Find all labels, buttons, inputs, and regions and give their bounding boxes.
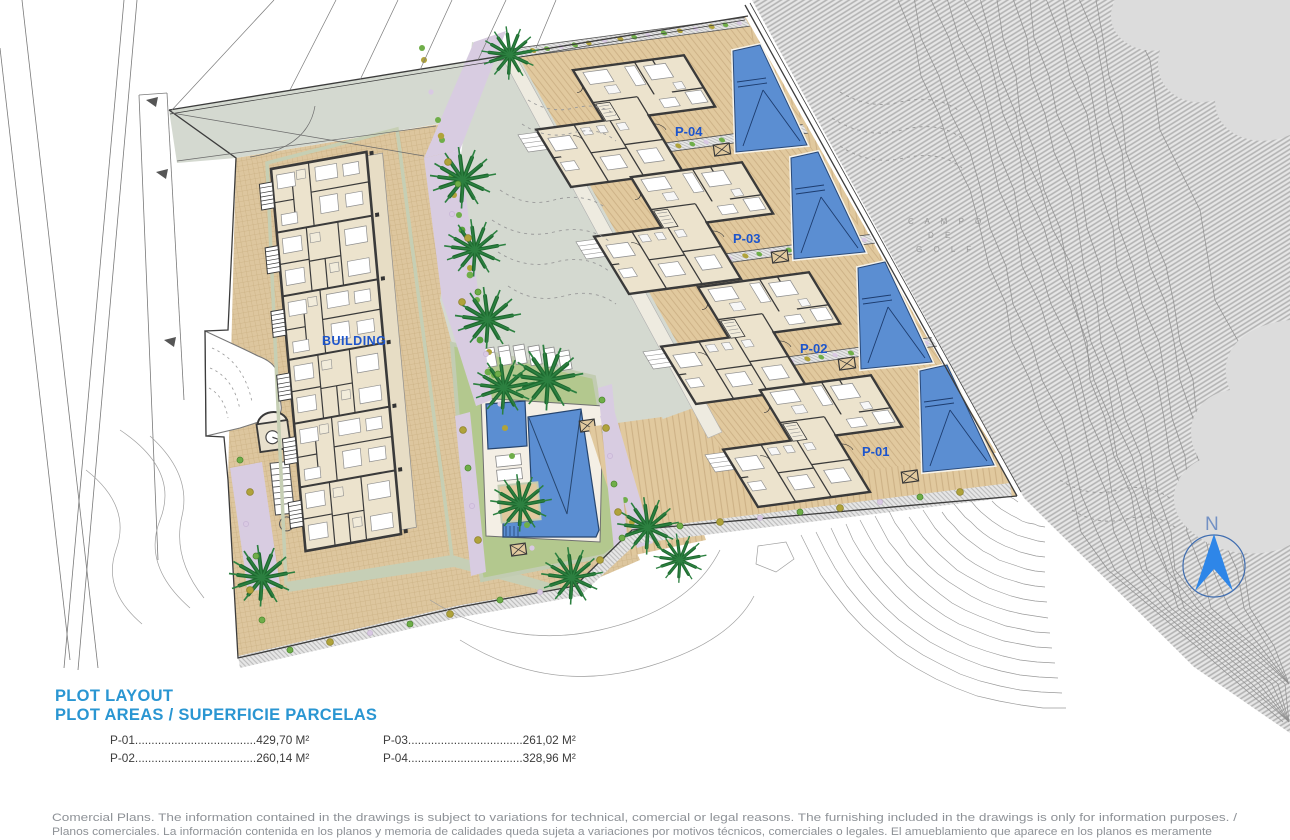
svg-text:P-04: P-04 [675, 124, 703, 139]
svg-text:BUILDING: BUILDING [322, 334, 386, 348]
svg-text:Planos comerciales. La informa: Planos comerciales. La información conte… [52, 826, 1212, 838]
svg-text:P-03..........................: P-03...................................2… [383, 733, 576, 747]
svg-text:D E: D E [928, 231, 955, 240]
svg-text:P-04..........................: P-04...................................3… [383, 751, 576, 765]
svg-text:PLOT AREAS / SUPERFICIE PARCEL: PLOT AREAS / SUPERFICIE PARCELAS [55, 706, 377, 724]
svg-text:Comercial Plans. The informati: Comercial Plans. The information contain… [52, 812, 1238, 824]
svg-text:P-01..........................: P-01....................................… [110, 733, 309, 747]
svg-text:C A M P O: C A M P O [908, 217, 986, 226]
svg-text:G O L F: G O L F [916, 245, 976, 254]
svg-text:PLOT LAYOUT: PLOT LAYOUT [55, 687, 173, 705]
svg-text:N: N [1205, 514, 1219, 535]
svg-text:P-01: P-01 [862, 444, 889, 459]
svg-text:P-02..........................: P-02....................................… [110, 751, 309, 765]
svg-text:P-03: P-03 [733, 231, 760, 246]
svg-text:P-02: P-02 [800, 341, 827, 356]
